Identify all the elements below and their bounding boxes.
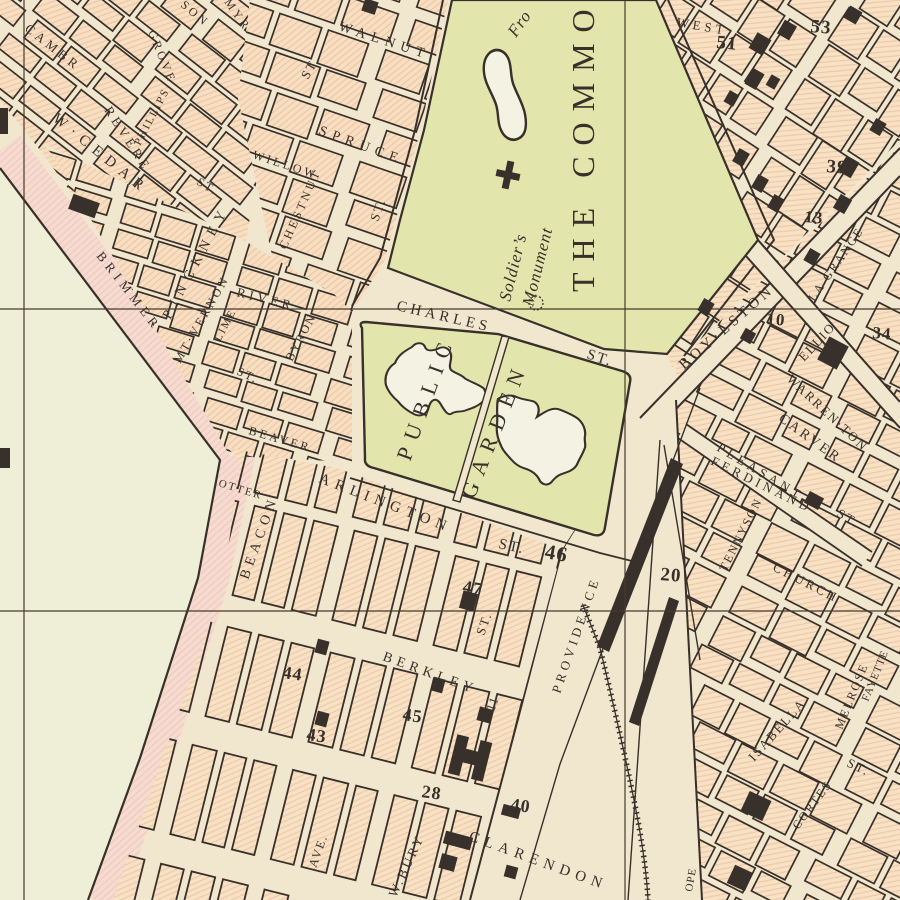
svg-text:34: 34 — [872, 323, 893, 344]
svg-text:46: 46 — [543, 539, 570, 567]
svg-text:THE COMMO: THE COMMO — [565, 0, 601, 292]
svg-text:28: 28 — [420, 781, 443, 804]
svg-text:20: 20 — [660, 564, 683, 587]
svg-text:45: 45 — [401, 704, 424, 727]
svg-text:44: 44 — [281, 662, 304, 685]
svg-text:43: 43 — [305, 724, 328, 747]
svg-text:13: 13 — [804, 207, 825, 228]
svg-text:40: 40 — [509, 794, 532, 817]
svg-text:39: 39 — [826, 156, 849, 179]
svg-text:10: 10 — [766, 309, 787, 330]
svg-text:53: 53 — [810, 16, 833, 39]
svg-text:51: 51 — [716, 32, 739, 55]
svg-text:47: 47 — [461, 576, 484, 599]
